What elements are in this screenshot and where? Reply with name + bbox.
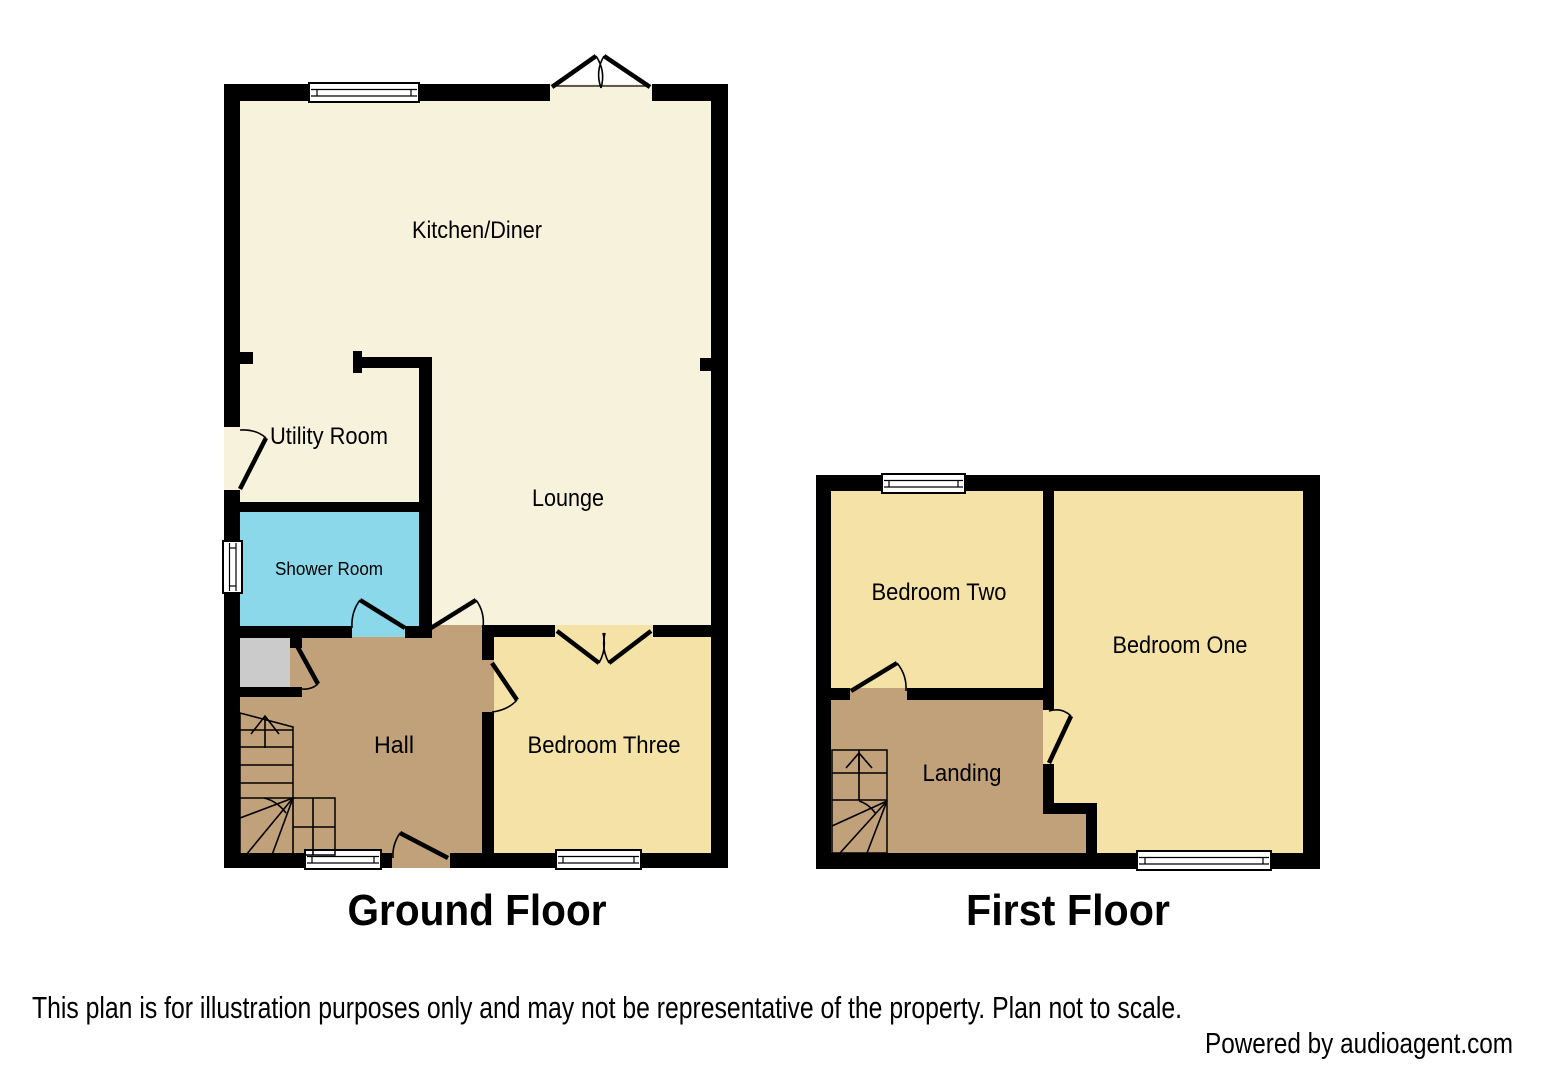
french-doors bbox=[552, 56, 650, 88]
window bbox=[309, 83, 419, 102]
utility-door-gap-fill bbox=[224, 427, 240, 490]
wall bbox=[224, 687, 302, 697]
wall bbox=[1043, 700, 1054, 710]
wall bbox=[224, 626, 352, 638]
wall bbox=[482, 625, 494, 660]
first-floor-title: First Floor bbox=[966, 886, 1170, 935]
bed2-door-gap-fill bbox=[850, 688, 907, 700]
floorplan-svg: Kitchen/Diner Utility Room Shower Room L… bbox=[0, 0, 1542, 1080]
wall-stub bbox=[700, 358, 711, 371]
room-label-bedroom-two: Bedroom Two bbox=[872, 579, 1007, 606]
wall bbox=[831, 688, 850, 700]
wall-stub bbox=[240, 352, 253, 364]
understairs-cupboard bbox=[238, 634, 290, 687]
wall bbox=[1303, 475, 1320, 868]
shower-door-gap-fill bbox=[352, 626, 405, 638]
wall bbox=[1043, 491, 1054, 700]
disclaimer-text: This plan is for illustration purposes o… bbox=[32, 990, 1182, 1025]
window bbox=[223, 541, 242, 593]
room-label-lounge: Lounge bbox=[532, 485, 604, 512]
window bbox=[305, 850, 381, 869]
room-label-bedroom-three: Bedroom Three bbox=[528, 732, 681, 759]
floor-fills bbox=[831, 491, 1303, 853]
window bbox=[556, 850, 641, 869]
wall bbox=[711, 84, 728, 868]
room-label-utility-room: Utility Room bbox=[270, 423, 388, 450]
window bbox=[1137, 851, 1271, 870]
wall bbox=[240, 502, 419, 512]
bed3-door-gap-fill bbox=[482, 660, 494, 712]
ground-floor-title: Ground Floor bbox=[348, 886, 607, 935]
credit-text: Powered by audioagent.com bbox=[1205, 1028, 1513, 1060]
room-label-shower-room: Shower Room bbox=[275, 559, 383, 579]
room-label-kitchen-diner: Kitchen/Diner bbox=[412, 217, 542, 244]
wall bbox=[816, 475, 831, 868]
wall bbox=[419, 357, 432, 638]
floorplan-canvas: Kitchen/Diner Utility Room Shower Room L… bbox=[0, 0, 1542, 1080]
window bbox=[882, 474, 965, 493]
room-label-hall: Hall bbox=[374, 732, 414, 759]
wall bbox=[482, 712, 494, 853]
room-label-landing: Landing bbox=[923, 760, 1002, 787]
wall bbox=[653, 625, 711, 637]
wall bbox=[907, 688, 1054, 700]
wall bbox=[1043, 764, 1054, 803]
first-floor-plan: Bedroom Two Bedroom One Landing bbox=[816, 474, 1320, 870]
ground-floor-plan: Kitchen/Diner Utility Room Shower Room L… bbox=[223, 56, 728, 869]
wall bbox=[224, 84, 240, 427]
wall bbox=[405, 626, 431, 638]
wall bbox=[1086, 803, 1097, 853]
room-label-bedroom-one: Bedroom One bbox=[1113, 632, 1248, 659]
